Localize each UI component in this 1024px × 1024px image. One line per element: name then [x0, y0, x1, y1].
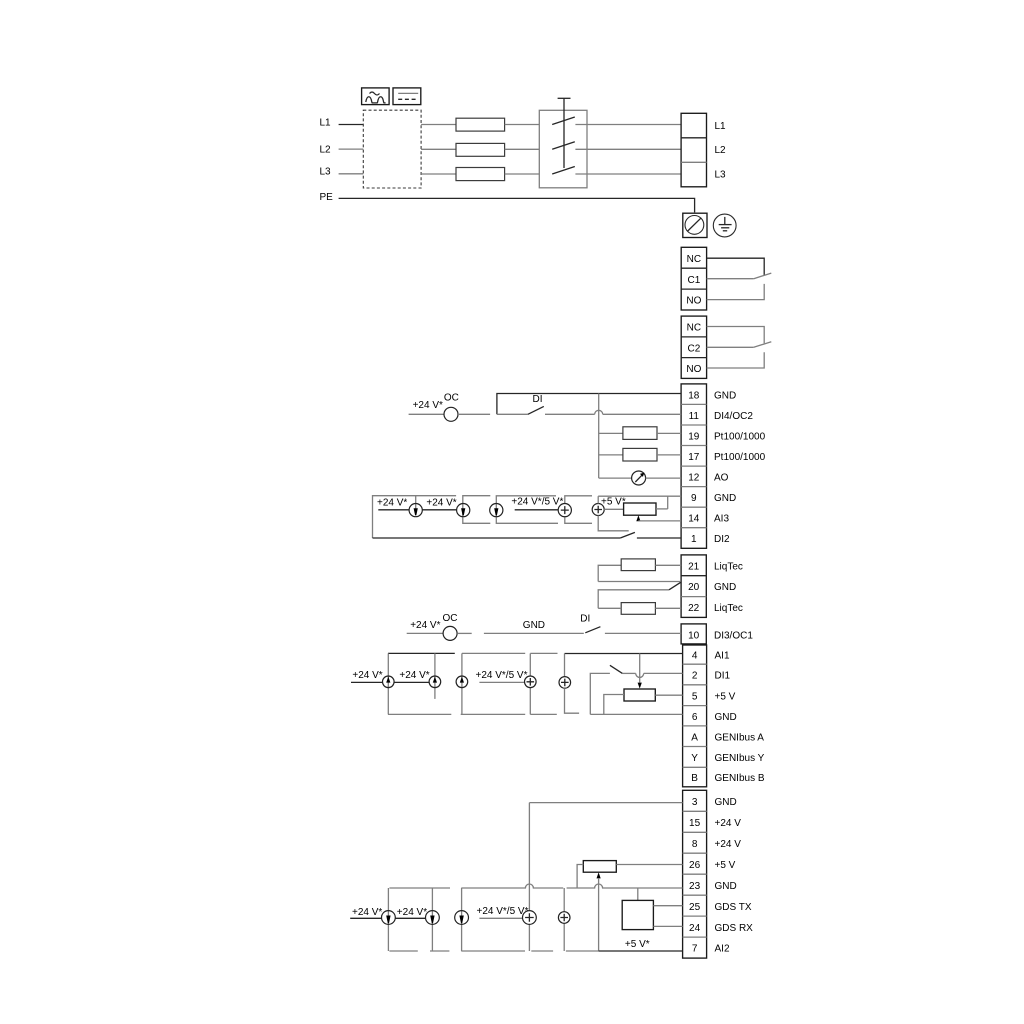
svg-text:+24 V*/5 V*: +24 V*/5 V*: [511, 496, 563, 507]
svg-text:7: 7: [692, 944, 698, 955]
svg-text:GDS TX: GDS TX: [715, 902, 752, 913]
svg-text:1: 1: [691, 534, 697, 545]
svg-text:+24 V*: +24 V*: [426, 497, 456, 508]
svg-text:AO: AO: [714, 473, 729, 484]
svg-text:6: 6: [692, 712, 698, 723]
svg-text:+24 V*: +24 V*: [410, 620, 440, 631]
svg-text:AI2: AI2: [715, 944, 730, 955]
svg-text:+24 V*: +24 V*: [399, 670, 429, 681]
svg-text:11: 11: [689, 411, 700, 422]
svg-text:+24 V: +24 V: [715, 818, 742, 829]
svg-text:4: 4: [692, 651, 698, 662]
svg-text:LiqTec: LiqTec: [714, 603, 743, 614]
svg-text:+24 V*/5 V*: +24 V*/5 V*: [476, 670, 528, 681]
svg-text:+24 V*: +24 V*: [397, 907, 427, 918]
svg-text:C2: C2: [688, 343, 701, 354]
svg-text:5: 5: [692, 691, 698, 702]
svg-text:24: 24: [689, 923, 701, 934]
svg-text:20: 20: [688, 582, 700, 593]
svg-text:DI1: DI1: [715, 671, 731, 682]
svg-text:+5 V: +5 V: [715, 860, 736, 871]
svg-text:NO: NO: [686, 296, 701, 307]
svg-text:+5 V*: +5 V*: [601, 496, 626, 507]
svg-text:+24 V*: +24 V*: [352, 670, 382, 681]
svg-text:DI: DI: [580, 613, 590, 624]
svg-text:DI: DI: [533, 394, 543, 405]
svg-text:OC: OC: [443, 613, 458, 624]
svg-text:NC: NC: [687, 254, 701, 265]
svg-text:+24 V*/5 V*: +24 V*/5 V*: [477, 906, 529, 917]
svg-text:L3: L3: [320, 167, 332, 178]
svg-text:2: 2: [692, 671, 698, 682]
svg-text:GND: GND: [523, 620, 545, 631]
svg-text:NO: NO: [686, 364, 701, 375]
svg-text:GND: GND: [715, 797, 737, 808]
svg-text:Y: Y: [691, 753, 698, 764]
svg-text:C1: C1: [688, 275, 701, 286]
svg-text:+5 V: +5 V: [715, 691, 736, 702]
svg-text:AI3: AI3: [714, 514, 729, 525]
svg-text:23: 23: [689, 881, 701, 892]
svg-text:15: 15: [689, 818, 701, 829]
svg-text:3: 3: [692, 797, 698, 808]
svg-text:DI4/OC2: DI4/OC2: [714, 411, 753, 422]
svg-text:LiqTec: LiqTec: [714, 561, 743, 572]
svg-text:GND: GND: [715, 712, 737, 723]
svg-text:DI2: DI2: [714, 534, 730, 545]
svg-text:9: 9: [691, 493, 697, 504]
svg-text:L1: L1: [320, 118, 332, 129]
svg-text:Pt100/1000: Pt100/1000: [714, 452, 766, 463]
svg-text:B: B: [691, 773, 698, 784]
svg-text:14: 14: [688, 514, 700, 525]
svg-text:AI1: AI1: [715, 651, 730, 662]
svg-text:19: 19: [688, 431, 700, 442]
svg-text:8: 8: [692, 839, 698, 850]
svg-text:NC: NC: [687, 323, 701, 334]
svg-text:10: 10: [688, 631, 700, 642]
svg-text:L3: L3: [715, 169, 727, 180]
svg-text:+5 V*: +5 V*: [625, 939, 650, 950]
svg-text:Pt100/1000: Pt100/1000: [714, 431, 766, 442]
svg-text:+24 V: +24 V: [715, 839, 742, 850]
svg-text:OC: OC: [444, 392, 459, 403]
svg-text:GENIbus A: GENIbus A: [715, 732, 765, 743]
svg-text:25: 25: [689, 902, 701, 913]
svg-text:A: A: [691, 732, 698, 743]
svg-text:GENIbus B: GENIbus B: [715, 773, 765, 784]
svg-text:26: 26: [689, 860, 701, 871]
svg-text:GND: GND: [715, 881, 737, 892]
svg-text:L2: L2: [715, 145, 727, 156]
svg-text:12: 12: [688, 473, 700, 484]
svg-text:+24 V*: +24 V*: [413, 400, 443, 411]
svg-text:22: 22: [688, 603, 700, 614]
svg-text:18: 18: [688, 390, 700, 401]
svg-text:GND: GND: [714, 493, 736, 504]
svg-text:+24 V*: +24 V*: [377, 497, 407, 508]
svg-text:+24 V*: +24 V*: [352, 907, 382, 918]
svg-text:GDS RX: GDS RX: [715, 923, 754, 934]
svg-text:L2: L2: [320, 144, 332, 155]
svg-text:21: 21: [688, 561, 700, 572]
svg-text:17: 17: [688, 452, 700, 463]
svg-text:DI3/OC1: DI3/OC1: [714, 631, 753, 642]
svg-text:L1: L1: [715, 121, 727, 132]
svg-text:GND: GND: [714, 582, 736, 593]
svg-text:PE: PE: [320, 192, 334, 203]
svg-text:GENIbus Y: GENIbus Y: [715, 753, 765, 764]
svg-text:GND: GND: [714, 390, 736, 401]
